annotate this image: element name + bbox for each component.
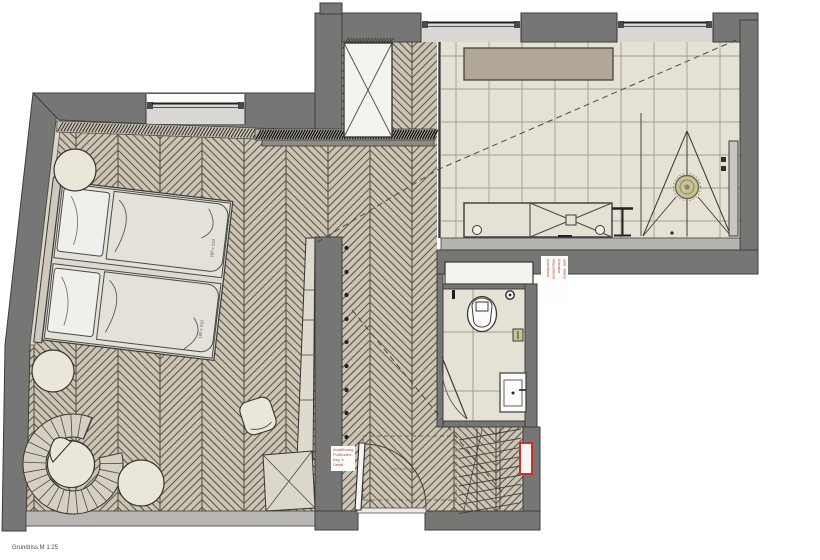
svg-text:Waschtisch: Waschtisch bbox=[552, 259, 557, 279]
svg-text:Bodenaufbau s. D.: Bodenaufbau s. D. bbox=[390, 467, 419, 471]
svg-text:Detail: Detail bbox=[333, 462, 343, 467]
svg-text:Armatur: Armatur bbox=[557, 259, 562, 274]
svg-text:Anschluss: Anschluss bbox=[546, 259, 551, 277]
svg-text:Grundriss M 1:25: Grundriss M 1:25 bbox=[12, 545, 59, 551]
svg-text:seitl. Wand: seitl. Wand bbox=[563, 259, 568, 279]
